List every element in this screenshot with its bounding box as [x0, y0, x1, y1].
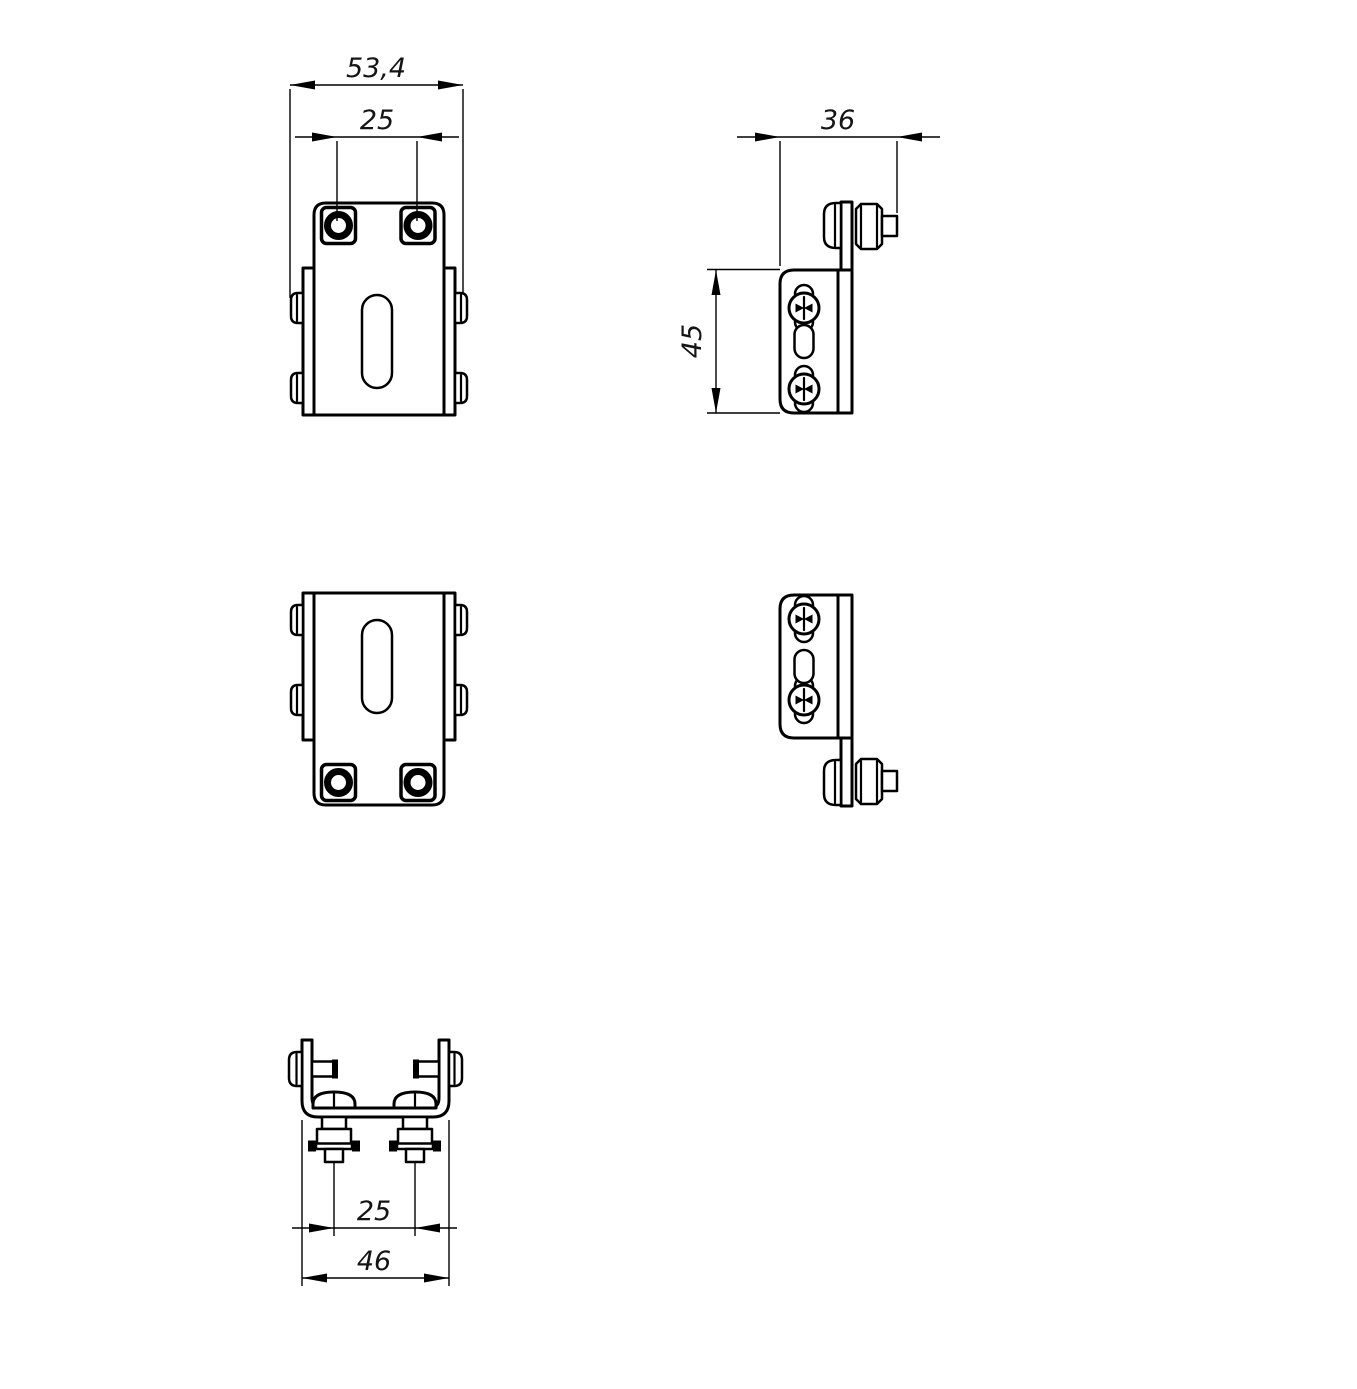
- stud-right: [389, 1117, 441, 1162]
- bottom-view: [289, 1040, 462, 1162]
- plate-tab: [841, 738, 852, 806]
- stud-left: [308, 1117, 360, 1162]
- flange-left: [303, 268, 314, 415]
- dim-label-36: 36: [821, 105, 855, 136]
- dim-bottom-stud-spacing: 25: [292, 1163, 457, 1236]
- slot: [362, 295, 392, 388]
- dim-label-46: 46: [357, 1246, 391, 1277]
- stud-end: [882, 771, 897, 791]
- dim-label-45: 45: [677, 324, 708, 358]
- stud-end: [882, 216, 897, 236]
- front-view-bottom: [291, 593, 467, 805]
- bolt-assembly-top: [824, 203, 897, 249]
- slot: [362, 620, 392, 713]
- weld-nut-right: [401, 765, 435, 801]
- flange-left: [303, 593, 314, 740]
- drawing-canvas: 53,4 25: [0, 0, 1357, 1389]
- side-view-bottom: [780, 595, 897, 806]
- plate-edge: [838, 595, 852, 738]
- weld-nut-left: [322, 765, 356, 801]
- bracket-drawing: 53,4 25: [0, 0, 1357, 1389]
- base-screw-heads: [313, 1092, 436, 1108]
- slot: [795, 650, 814, 683]
- dim-side-height: 45: [677, 270, 780, 414]
- weld-nut-right: [401, 208, 435, 244]
- slot: [795, 325, 814, 358]
- dim-label-25-top: 25: [360, 105, 394, 136]
- plate-tab: [841, 202, 852, 270]
- flange-right: [444, 268, 455, 415]
- front-view-top: [291, 203, 467, 415]
- bolt-head: [824, 203, 841, 248]
- bolt-head: [824, 760, 841, 805]
- flange-right: [444, 593, 455, 740]
- plate-edge: [838, 270, 852, 413]
- side-view-top: [780, 202, 897, 413]
- dim-label-25-bottom: 25: [357, 1196, 391, 1227]
- bolt-assembly-bottom: [824, 759, 897, 805]
- dim-label-53-4: 53,4: [346, 53, 406, 84]
- weld-nut-left: [322, 208, 356, 244]
